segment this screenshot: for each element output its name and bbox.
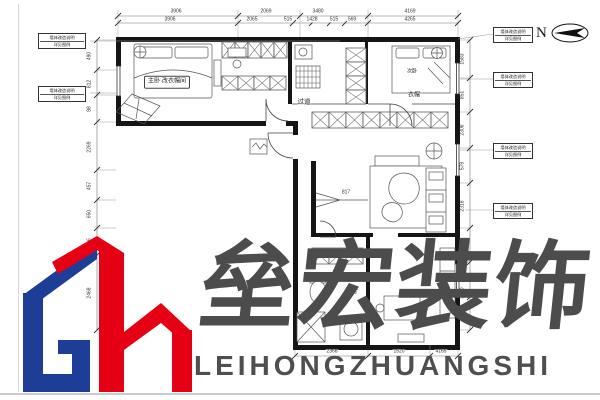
leader-lines: [316, 193, 368, 207]
compass-icon: [550, 22, 590, 44]
floor-plan-sheet: 主卧·改衣帽间过道次卧衣帽餐厅 390620693480416939062065…: [0, 0, 600, 400]
north-label: N: [536, 25, 547, 42]
floor-plan-drawing: [0, 0, 600, 400]
north-arrow: N: [536, 22, 590, 44]
